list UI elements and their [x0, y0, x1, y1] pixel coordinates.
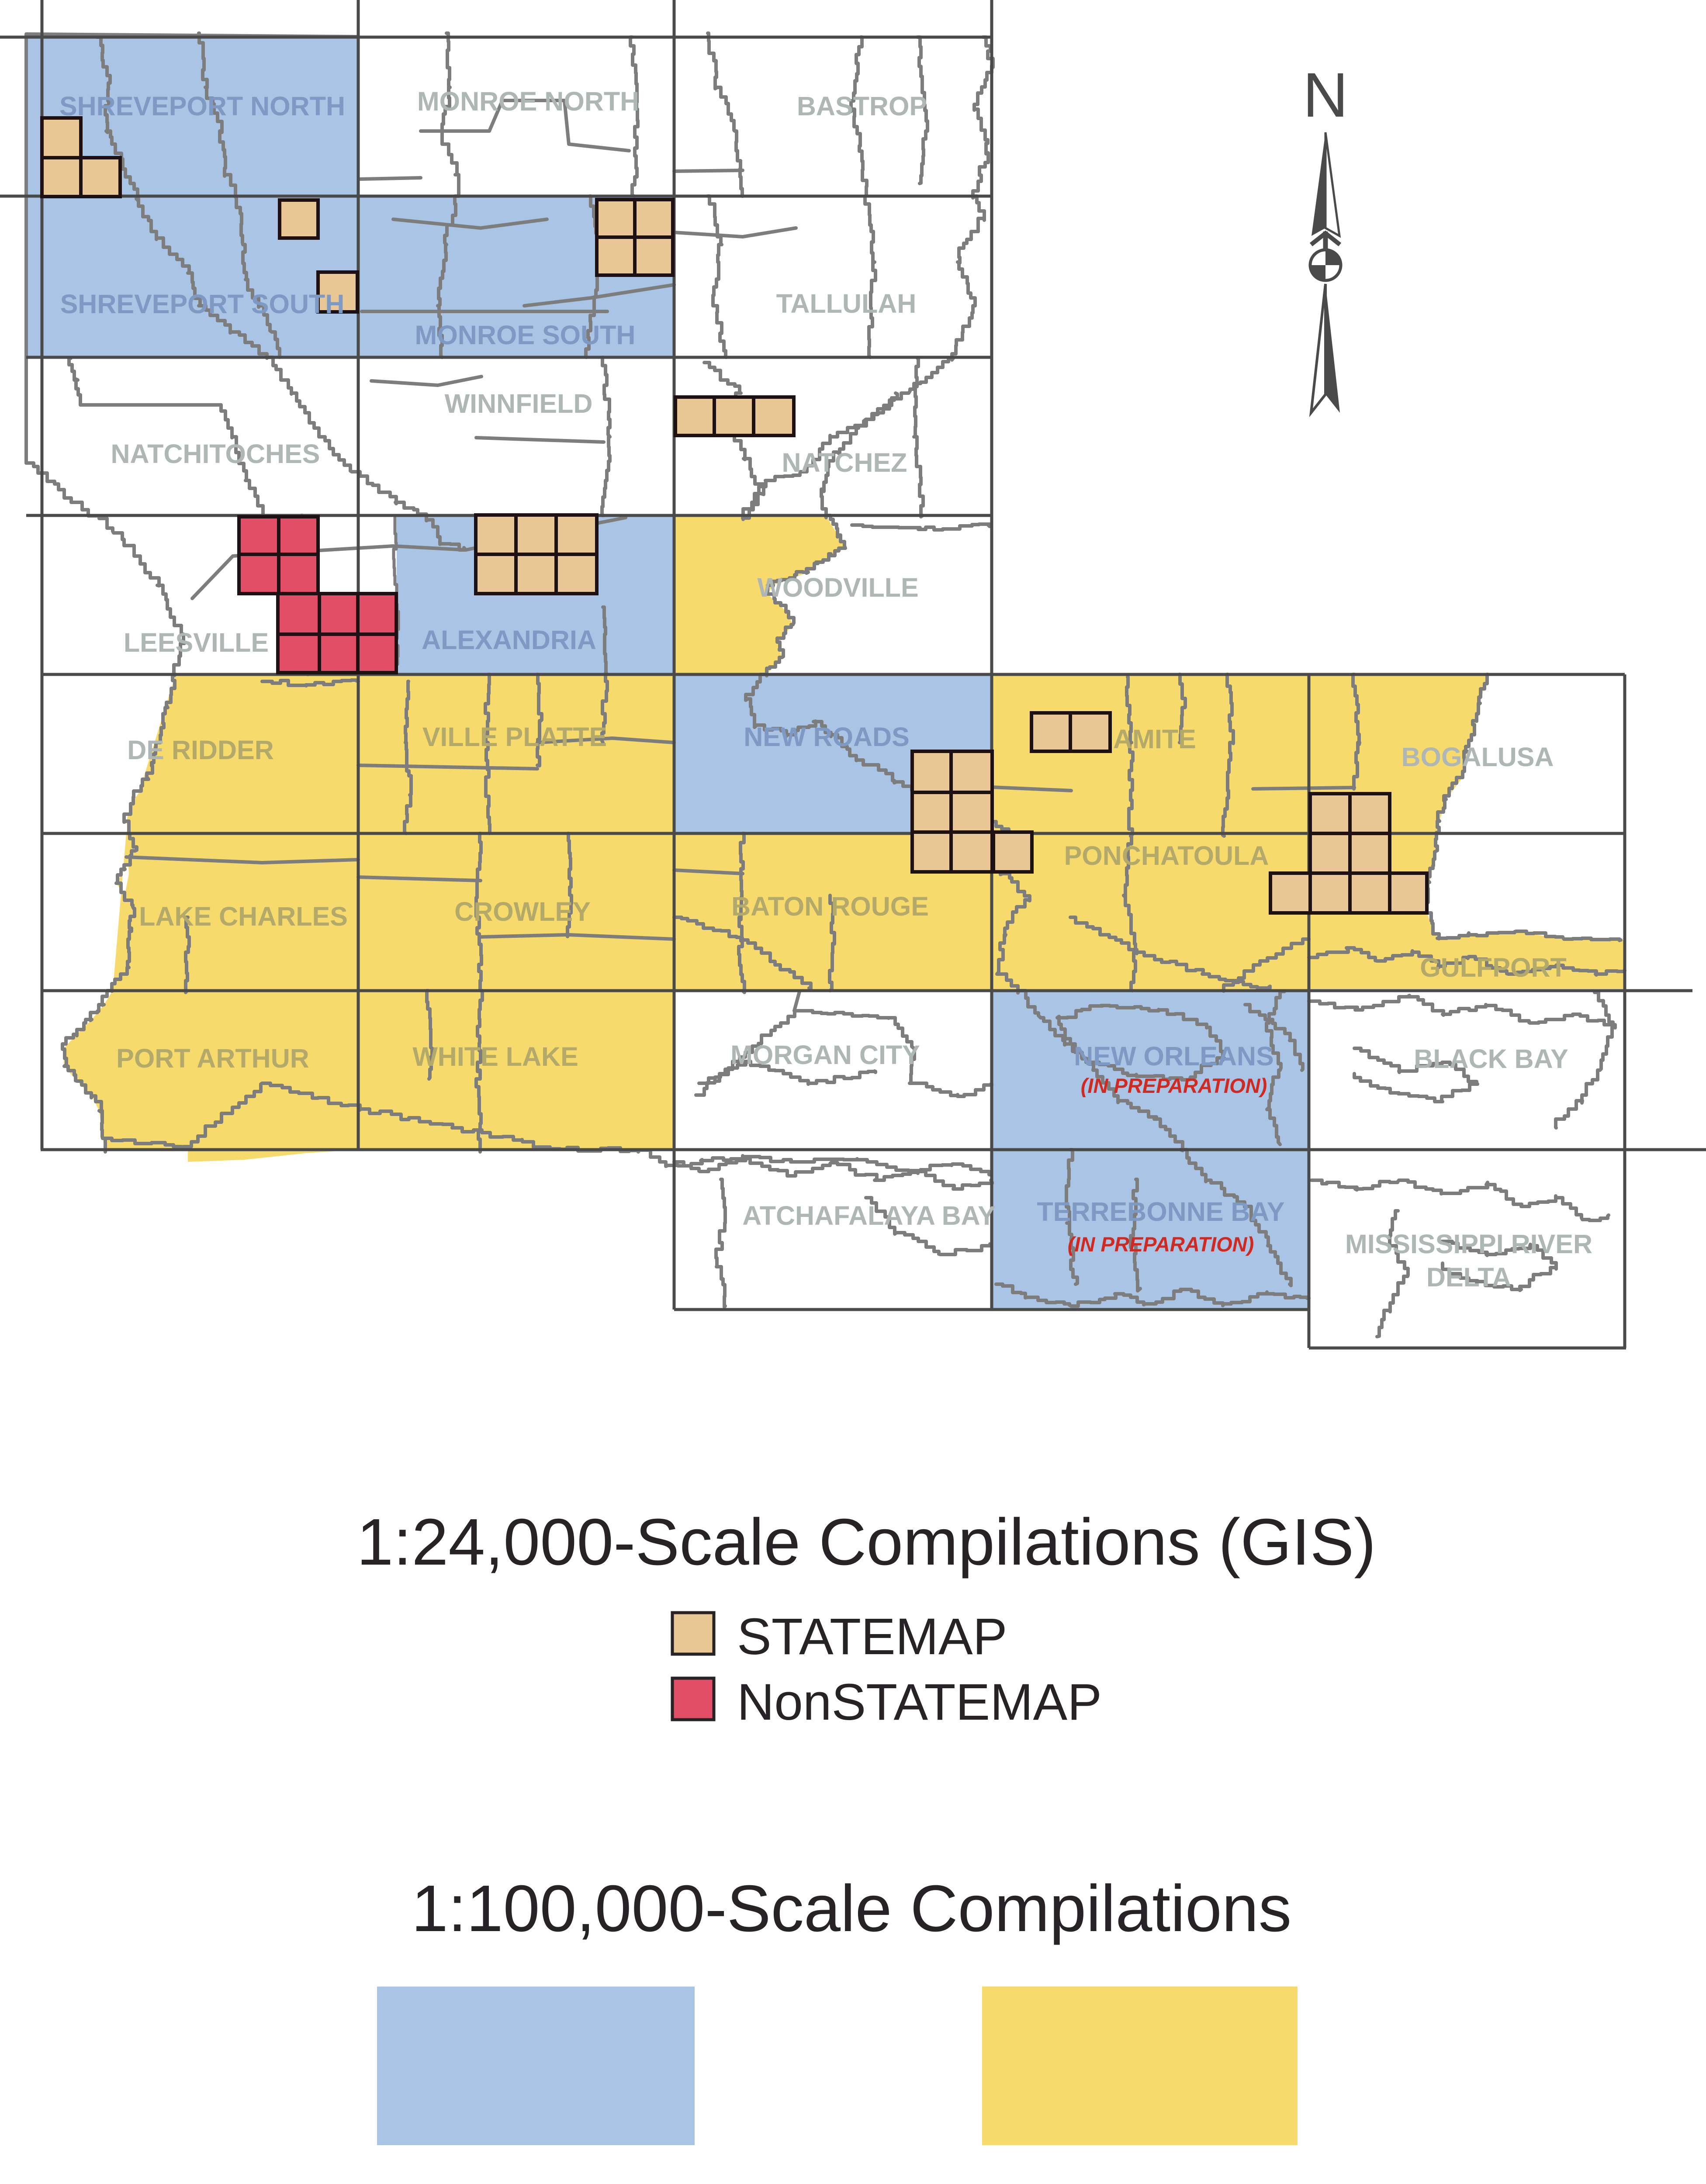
- svg-text:WINNFIELD: WINNFIELD: [445, 389, 593, 418]
- svg-text:(IN PREPARATION): (IN PREPARATION): [1081, 1074, 1267, 1097]
- svg-text:(IN PREPARATION): (IN PREPARATION): [1068, 1233, 1254, 1256]
- svg-text:CROWLEY: CROWLEY: [454, 897, 591, 926]
- svg-text:1:24,000-Scale Compilations (G: 1:24,000-Scale Compilations (GIS): [356, 1505, 1376, 1579]
- svg-text:LEESVILLE: LEESVILLE: [124, 628, 269, 657]
- svg-text:ALEXANDRIA: ALEXANDRIA: [422, 625, 596, 655]
- svg-text:PONCHATOULA: PONCHATOULA: [1064, 841, 1269, 871]
- svg-text:PORT ARTHUR: PORT ARTHUR: [116, 1044, 309, 1073]
- svg-text:N: N: [1303, 60, 1348, 130]
- svg-text:GIS Compilation: GIS Compilation: [360, 2181, 725, 2184]
- svg-text:BLACK BAY: BLACK BAY: [1414, 1044, 1568, 1074]
- svg-text:NATCHEZ: NATCHEZ: [782, 448, 907, 477]
- svg-text:VILLE PLATTE: VILLE PLATTE: [422, 722, 607, 752]
- svg-text:Printed Lithograph: Printed Lithograph: [944, 2181, 1354, 2184]
- svg-text:DE RIDDER: DE RIDDER: [127, 735, 274, 765]
- svg-text:LAKE CHARLES: LAKE CHARLES: [139, 902, 348, 931]
- svg-text:BATON ROUGE: BATON ROUGE: [731, 892, 929, 921]
- svg-text:NATCHITOCHES: NATCHITOCHES: [111, 439, 320, 469]
- svg-text:MISSISSIPPI RIVER: MISSISSIPPI RIVER: [1345, 1229, 1592, 1259]
- svg-text:GULFPORT: GULFPORT: [1420, 953, 1566, 982]
- svg-text:NEW ROADS: NEW ROADS: [744, 722, 910, 752]
- svg-text:BASTROP: BASTROP: [797, 91, 927, 121]
- svg-text:WHITE LAKE: WHITE LAKE: [412, 1042, 578, 1071]
- svg-text:1:100,000-Scale Compilations: 1:100,000-Scale Compilations: [412, 1871, 1292, 1945]
- svg-text:WOODVILLE: WOODVILLE: [757, 573, 918, 602]
- svg-text:MONROE NORTH: MONROE NORTH: [417, 86, 639, 116]
- svg-text:MORGAN CITY: MORGAN CITY: [730, 1040, 920, 1070]
- svg-text:TALLULAH: TALLULAH: [776, 289, 917, 318]
- svg-text:AMITE: AMITE: [1113, 724, 1196, 754]
- svg-text:STATEMAP: STATEMAP: [737, 1608, 1007, 1666]
- svg-text:NEW ORLEANS: NEW ORLEANS: [1074, 1041, 1274, 1071]
- svg-text:TERREBONNE BAY: TERREBONNE BAY: [1037, 1197, 1284, 1227]
- svg-text:SHREVEPORT SOUTH: SHREVEPORT SOUTH: [60, 289, 345, 319]
- svg-text:NonSTATEMAP: NonSTATEMAP: [737, 1673, 1102, 1731]
- svg-text:DELTA: DELTA: [1426, 1262, 1511, 1292]
- svg-text:BOGALUSA: BOGALUSA: [1401, 742, 1554, 772]
- svg-text:SHREVEPORT NORTH: SHREVEPORT NORTH: [59, 91, 345, 121]
- svg-text:ATCHAFALAYA BAY: ATCHAFALAYA BAY: [742, 1201, 996, 1230]
- svg-text:MONROE SOUTH: MONROE SOUTH: [415, 320, 636, 350]
